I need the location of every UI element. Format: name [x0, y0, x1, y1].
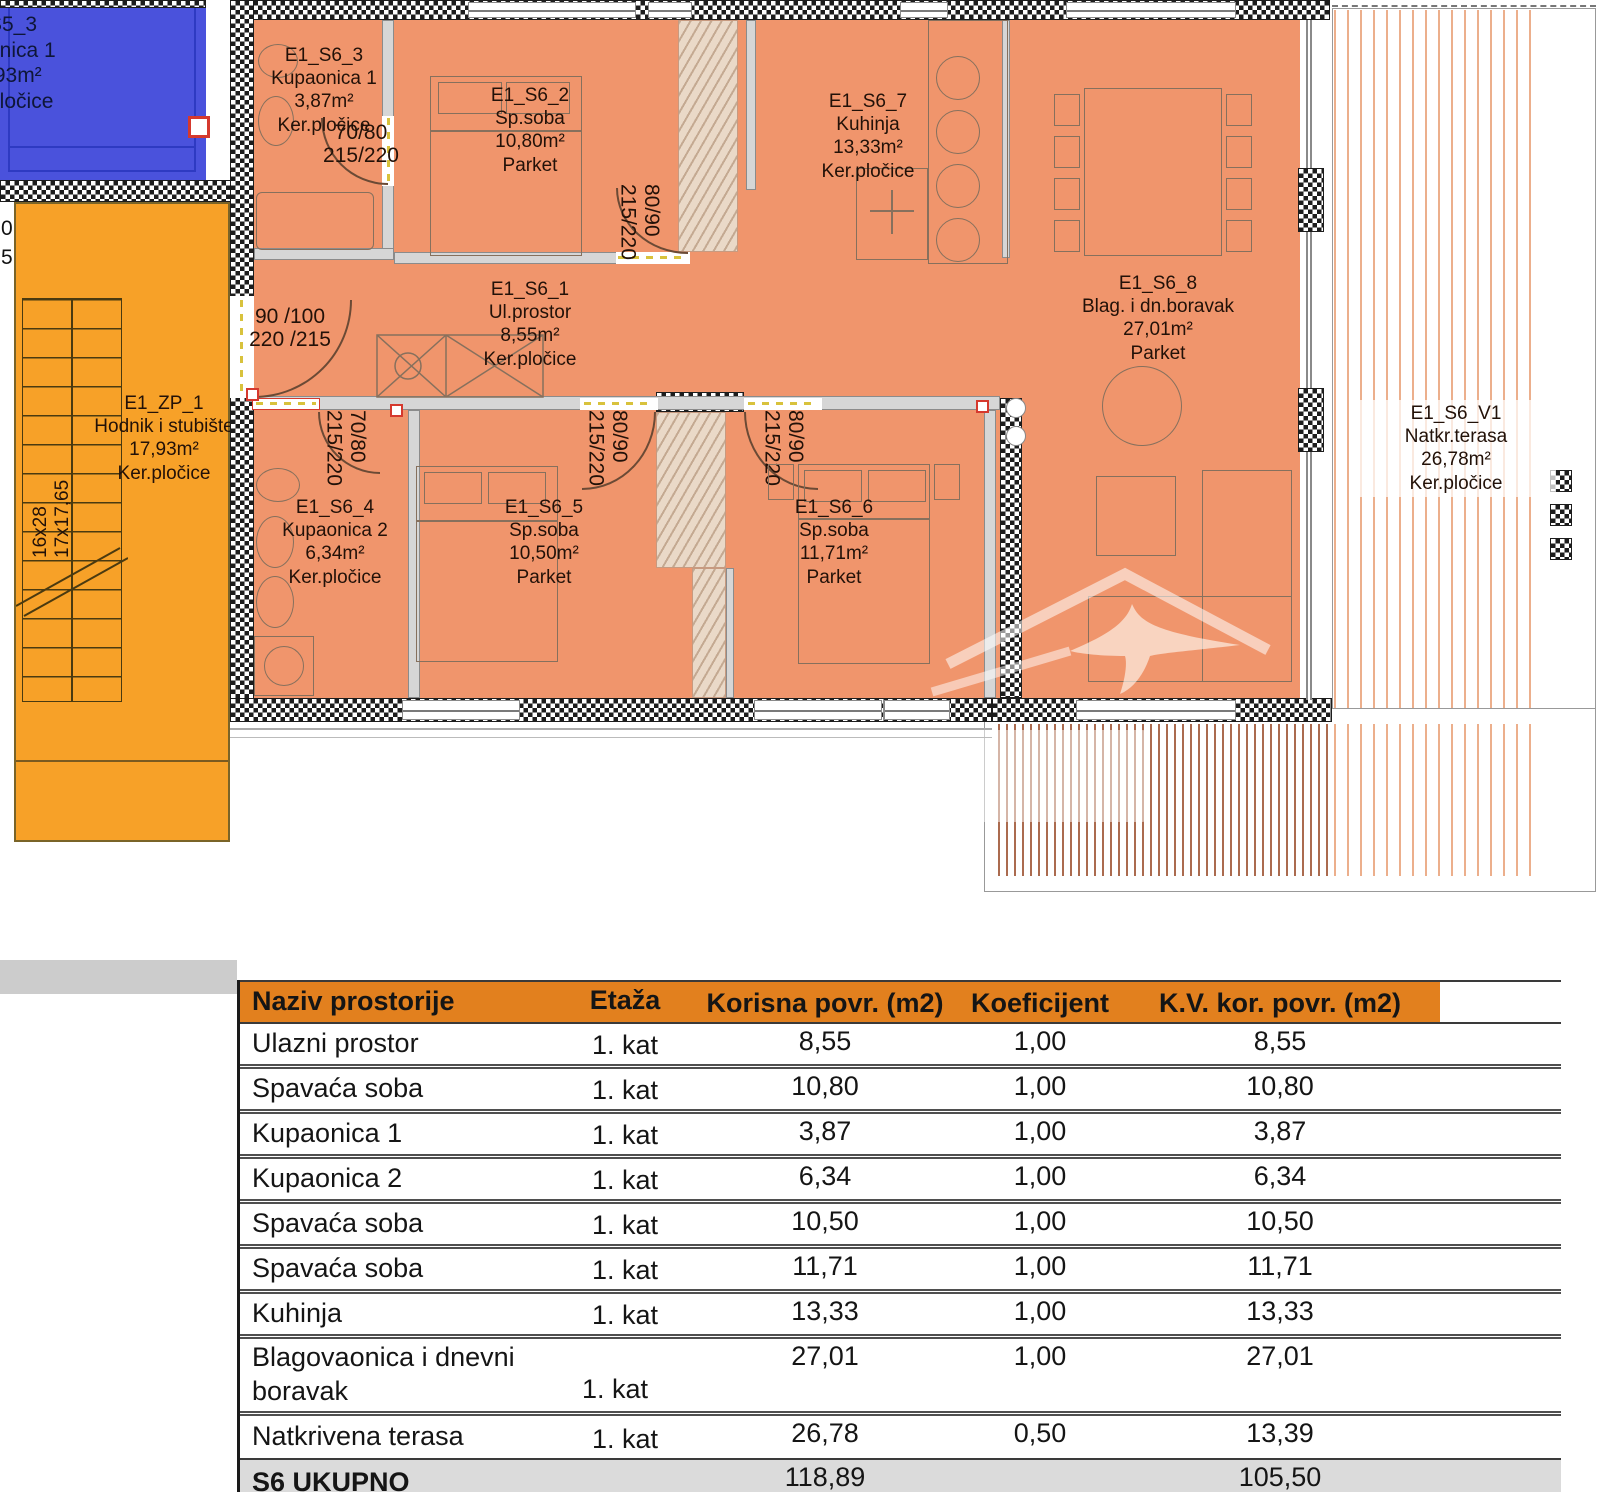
- header-korisna: Korisna povr. (m2): [690, 982, 960, 1022]
- total-korisna: 118,89: [690, 1460, 960, 1492]
- room-name: Kupaonica 1: [236, 67, 412, 90]
- sink-bowl: [1006, 426, 1026, 446]
- room-label-e1-s6-5: E1_S6_5 Sp.soba 10,50m² Parket: [442, 496, 646, 589]
- dining-table: [1084, 88, 1222, 256]
- sink-bowl: [1006, 398, 1026, 418]
- ventilation-shaft: [656, 412, 726, 568]
- lower-deck-boards: [1334, 724, 1542, 876]
- room-floor: Parket: [442, 566, 646, 589]
- total-label: S6 UKUPNO: [240, 1460, 560, 1492]
- table-header-row: Naziv prostorije Etaža Korisna povr. (m2…: [240, 980, 1561, 1024]
- wall-segment: [1550, 504, 1572, 526]
- room-id: E1_S6_2: [428, 84, 632, 107]
- room-floor: Parket: [428, 154, 632, 177]
- room-name: Hodnik i stubište: [88, 415, 240, 438]
- room-area: 27,01m²: [1036, 318, 1280, 341]
- table-row: Kupaonica 1 1. kat 3,87 1,00 3,87: [240, 1109, 1561, 1154]
- header-koeficijent: Koeficijent: [960, 982, 1120, 1022]
- nightstand: [768, 464, 794, 500]
- floor-plan-page: S5_3 onica 1 ,93m² pločice 0 5 16x28 17x…: [0, 0, 1600, 1492]
- room-area: 10,80m²: [428, 130, 632, 153]
- room-label-e1-s6-8: E1_S6_8 Blag. i dn.boravak 27,01m² Parke…: [1036, 272, 1280, 365]
- chair: [1226, 136, 1252, 168]
- window: [754, 700, 882, 720]
- room-floor: Ker.pločice: [766, 160, 970, 183]
- room-id: E1_S6_8: [1036, 272, 1280, 295]
- chair: [1226, 94, 1252, 126]
- room-name: Kupaonica 2: [240, 519, 430, 542]
- window: [1066, 2, 1236, 18]
- room-id: E1_S6_3: [236, 44, 412, 67]
- room-name: Natkr.terasa: [1356, 425, 1556, 448]
- room-area: 10,50m²: [442, 542, 646, 565]
- nightstand: [934, 464, 960, 500]
- room-area: 3,87m²: [236, 90, 412, 113]
- room-label-e1-s6-1: E1_S6_1 Ul.prostor 8,55m² Ker.pločice: [428, 278, 632, 371]
- chair: [1054, 136, 1080, 168]
- neighbor-unit-label: S5_3 onica 1 ,93m² pločice: [0, 12, 158, 114]
- room-name: onica 1: [0, 38, 158, 64]
- room-area: 8,55m²: [428, 324, 632, 347]
- door-frame-marker: [976, 400, 989, 413]
- opening-axis: [256, 402, 316, 405]
- edge-partial-label: 0 5: [1, 214, 13, 273]
- room-id: S5_3: [0, 12, 158, 38]
- watermark-band: [560, 730, 1150, 822]
- coffee-table: [1096, 476, 1176, 556]
- wall-segment: [0, 0, 206, 8]
- round-table: [1102, 366, 1182, 446]
- sill-line: [230, 728, 992, 730]
- room-floor: Ker.pločice: [240, 566, 430, 589]
- room-area: 26,78m²: [1356, 448, 1556, 471]
- room-floor: Ker.pločice: [428, 348, 632, 371]
- washing-machine-drum: [264, 646, 304, 686]
- table-row: Spavaća soba 1. kat 10,80 1,00 10,80: [240, 1064, 1561, 1109]
- window: [468, 2, 636, 18]
- room-floor: Ker.pločice: [1356, 472, 1556, 495]
- room-name: Ul.prostor: [428, 301, 632, 324]
- room-id: E1_ZP_1: [88, 392, 240, 415]
- room-floor: Parket: [1036, 342, 1280, 365]
- stair-landing-line: [16, 760, 228, 762]
- room-name: Sp.soba: [732, 519, 936, 542]
- chair: [1054, 94, 1080, 126]
- total-kv: 105,50: [1120, 1460, 1440, 1492]
- room-area: ,93m²: [0, 63, 158, 89]
- room-label-e1-s6-v1: E1_S6_V1 Natkr.terasa 26,78m² Ker.pločic…: [1356, 400, 1556, 497]
- table-row: Kupaonica 2 1. kat 6,34 1,00 6,34: [240, 1154, 1561, 1199]
- room-name: Blag. i dn.boravak: [1036, 295, 1280, 318]
- door-frame-marker: [390, 404, 403, 417]
- door-frame-marker: [188, 116, 210, 138]
- terrace-glass-wall: [1306, 20, 1312, 700]
- watermark-logo: [930, 552, 1275, 707]
- interior-wall: [746, 20, 756, 190]
- area-table: Naziv prostorije Etaža Korisna povr. (m2…: [237, 980, 1561, 1492]
- table-row: Natkrivena terasa 1. kat 26,78 0,50 13,3…: [240, 1411, 1561, 1458]
- stair-dimensions: 16x28 17x17,65: [30, 408, 74, 558]
- header-etaza: Etaža: [560, 982, 690, 1022]
- chair: [1054, 220, 1080, 252]
- wall-segment: [1550, 538, 1572, 560]
- room-area: 11,71m²: [732, 542, 936, 565]
- room-label-e1-s6-7: E1_S6_7 Kuhinja 13,33m² Ker.pločice: [766, 90, 970, 183]
- opening-axis: [584, 402, 654, 405]
- room-label-e1-s6-4: E1_S6_4 Kupaonica 2 6,34m² Ker.pločice: [240, 496, 430, 589]
- room-floor: Ker.pločice: [236, 114, 412, 137]
- room-label-e1-s6-3: E1_S6_3 Kupaonica 1 3,87m² Ker.pločice: [236, 44, 412, 137]
- room-label-e1-s6-2: E1_S6_2 Sp.soba 10,80m² Parket: [428, 84, 632, 177]
- table-row: Spavaća soba 1. kat 10,50 1,00 10,50: [240, 1199, 1561, 1244]
- table-row: Ulazni prostor 1. kat 8,55 1,00 8,55: [240, 1024, 1561, 1064]
- ventilation-shaft: [692, 568, 726, 698]
- left-gray-band: [0, 960, 237, 994]
- door-frame-marker: [246, 388, 259, 401]
- room-id: E1_S6_5: [442, 496, 646, 519]
- door-size-label: 80/90 215/220: [616, 184, 663, 288]
- sill-line: [230, 737, 992, 738]
- neighbor-unit-divider: [8, 146, 196, 148]
- room-area: 17,93m²: [88, 438, 240, 461]
- chair: [1054, 178, 1080, 210]
- room-area: 13,33m²: [766, 136, 970, 159]
- room-name: Sp.soba: [428, 107, 632, 130]
- room-name: Kuhinja: [766, 113, 970, 136]
- room-floor: pločice: [0, 89, 158, 115]
- wall-pier: [1298, 388, 1324, 452]
- chair: [1226, 178, 1252, 210]
- wall-pier: [1298, 168, 1324, 232]
- room-id: E1_S6_1: [428, 278, 632, 301]
- room-id: E1_S6_6: [732, 496, 936, 519]
- room-area: 6,34m²: [240, 542, 430, 565]
- header-kv: K.V. kor. povr. (m2): [1120, 982, 1440, 1022]
- room-label-e1-s6-6: E1_S6_6 Sp.soba 11,71m² Parket: [732, 496, 936, 589]
- door-size-label: 70/80 215/220: [322, 410, 369, 510]
- table-row: Kuhinja 1. kat 13,33 1,00 13,33: [240, 1289, 1561, 1334]
- header-naziv: Naziv prostorije: [240, 982, 560, 1022]
- door-size-label: 90 /100 220 /215: [238, 306, 342, 351]
- room-floor: Ker.pločice: [88, 462, 240, 485]
- header-spacer: [1440, 982, 1561, 1022]
- bathtub: [256, 192, 374, 250]
- chair: [1226, 220, 1252, 252]
- island-cross: [891, 190, 893, 234]
- room-id: E1_S6_7: [766, 90, 970, 113]
- window: [402, 700, 520, 720]
- stairwell-label: E1_ZP_1 Hodnik i stubište 17,93m² Ker.pl…: [88, 392, 240, 485]
- room-id: E1_S6_V1: [1356, 402, 1556, 425]
- table-total-row: S6 UKUPNO 118,89 105,50: [240, 1458, 1561, 1492]
- terrace-dashed-edge: [1332, 5, 1596, 10]
- burner: [936, 218, 980, 262]
- room-floor: Parket: [732, 566, 936, 589]
- window: [900, 2, 948, 18]
- opening-axis: [748, 402, 818, 405]
- wall-segment: [0, 180, 256, 202]
- floor-plan: S5_3 onica 1 ,93m² pločice 0 5 16x28 17x…: [0, 0, 1600, 935]
- table-row: Spavaća soba 1. kat 11,71 1,00 11,71: [240, 1244, 1561, 1289]
- room-name: Sp.soba: [442, 519, 646, 542]
- room-id: E1_S6_4: [240, 496, 430, 519]
- table-row: Blagovaonica i dnevni boravak 1. kat 27,…: [240, 1334, 1561, 1411]
- window: [648, 2, 692, 18]
